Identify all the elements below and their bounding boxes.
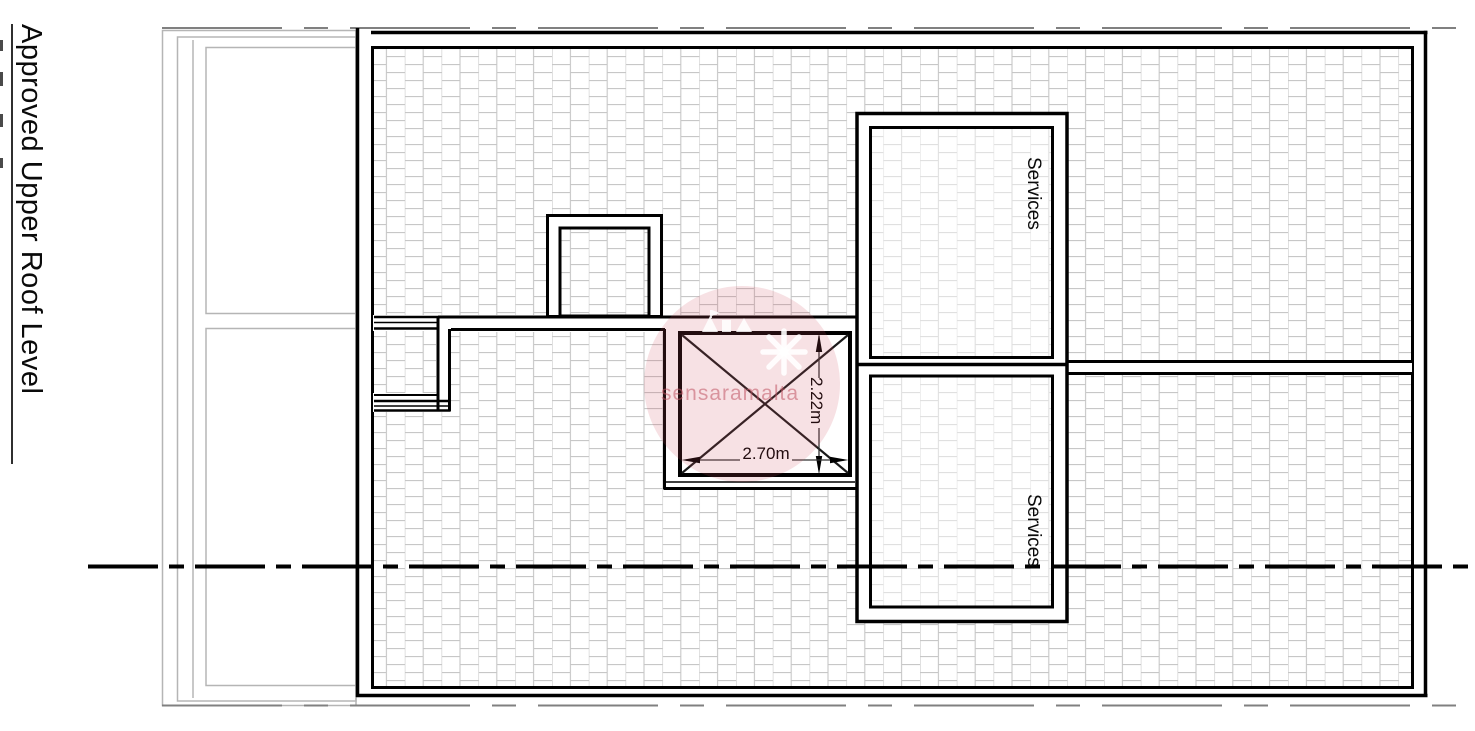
floor-plan-sheet: Approved Upper Roof Level Services Servi… <box>0 0 1475 731</box>
dimension-height-label: 2.22m <box>806 377 826 424</box>
chimney <box>548 216 662 317</box>
dimension-width-label: 2.70m <box>730 444 802 464</box>
room-label-services-lower: Services <box>1022 494 1044 567</box>
floor-plan-drawing <box>0 0 1475 731</box>
services-room-lower <box>871 376 1053 607</box>
adjacent-building-outline <box>163 31 357 706</box>
drawing-title: Approved Upper Roof Level <box>14 24 47 394</box>
room-label-services-upper: Services <box>1022 157 1044 230</box>
title-underline <box>11 24 13 464</box>
